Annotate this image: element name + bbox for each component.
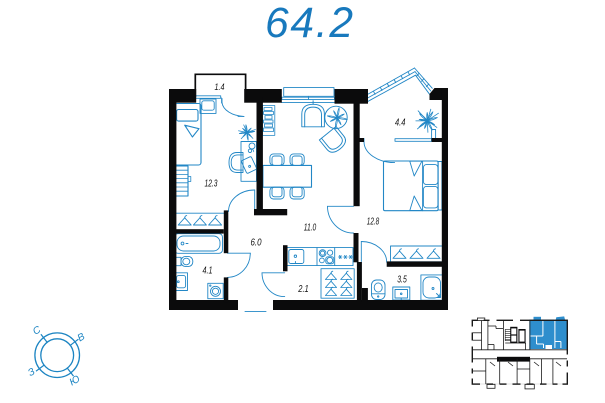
svg-text:12.3: 12.3 [205, 178, 218, 190]
svg-text:2.1: 2.1 [298, 283, 309, 295]
svg-text:Ю: Ю [68, 374, 82, 389]
svg-text:64.2: 64.2 [265, 0, 353, 47]
svg-text:1.4: 1.4 [215, 82, 225, 93]
svg-text:4.4: 4.4 [395, 117, 406, 129]
svg-text:11.0: 11.0 [304, 222, 317, 234]
svg-text:6.0: 6.0 [251, 237, 262, 249]
svg-text:4.1: 4.1 [203, 265, 213, 277]
svg-text:З: З [26, 366, 37, 379]
svg-text:3.5: 3.5 [397, 274, 407, 286]
svg-text:12.8: 12.8 [367, 216, 380, 228]
svg-text:В: В [76, 331, 88, 344]
